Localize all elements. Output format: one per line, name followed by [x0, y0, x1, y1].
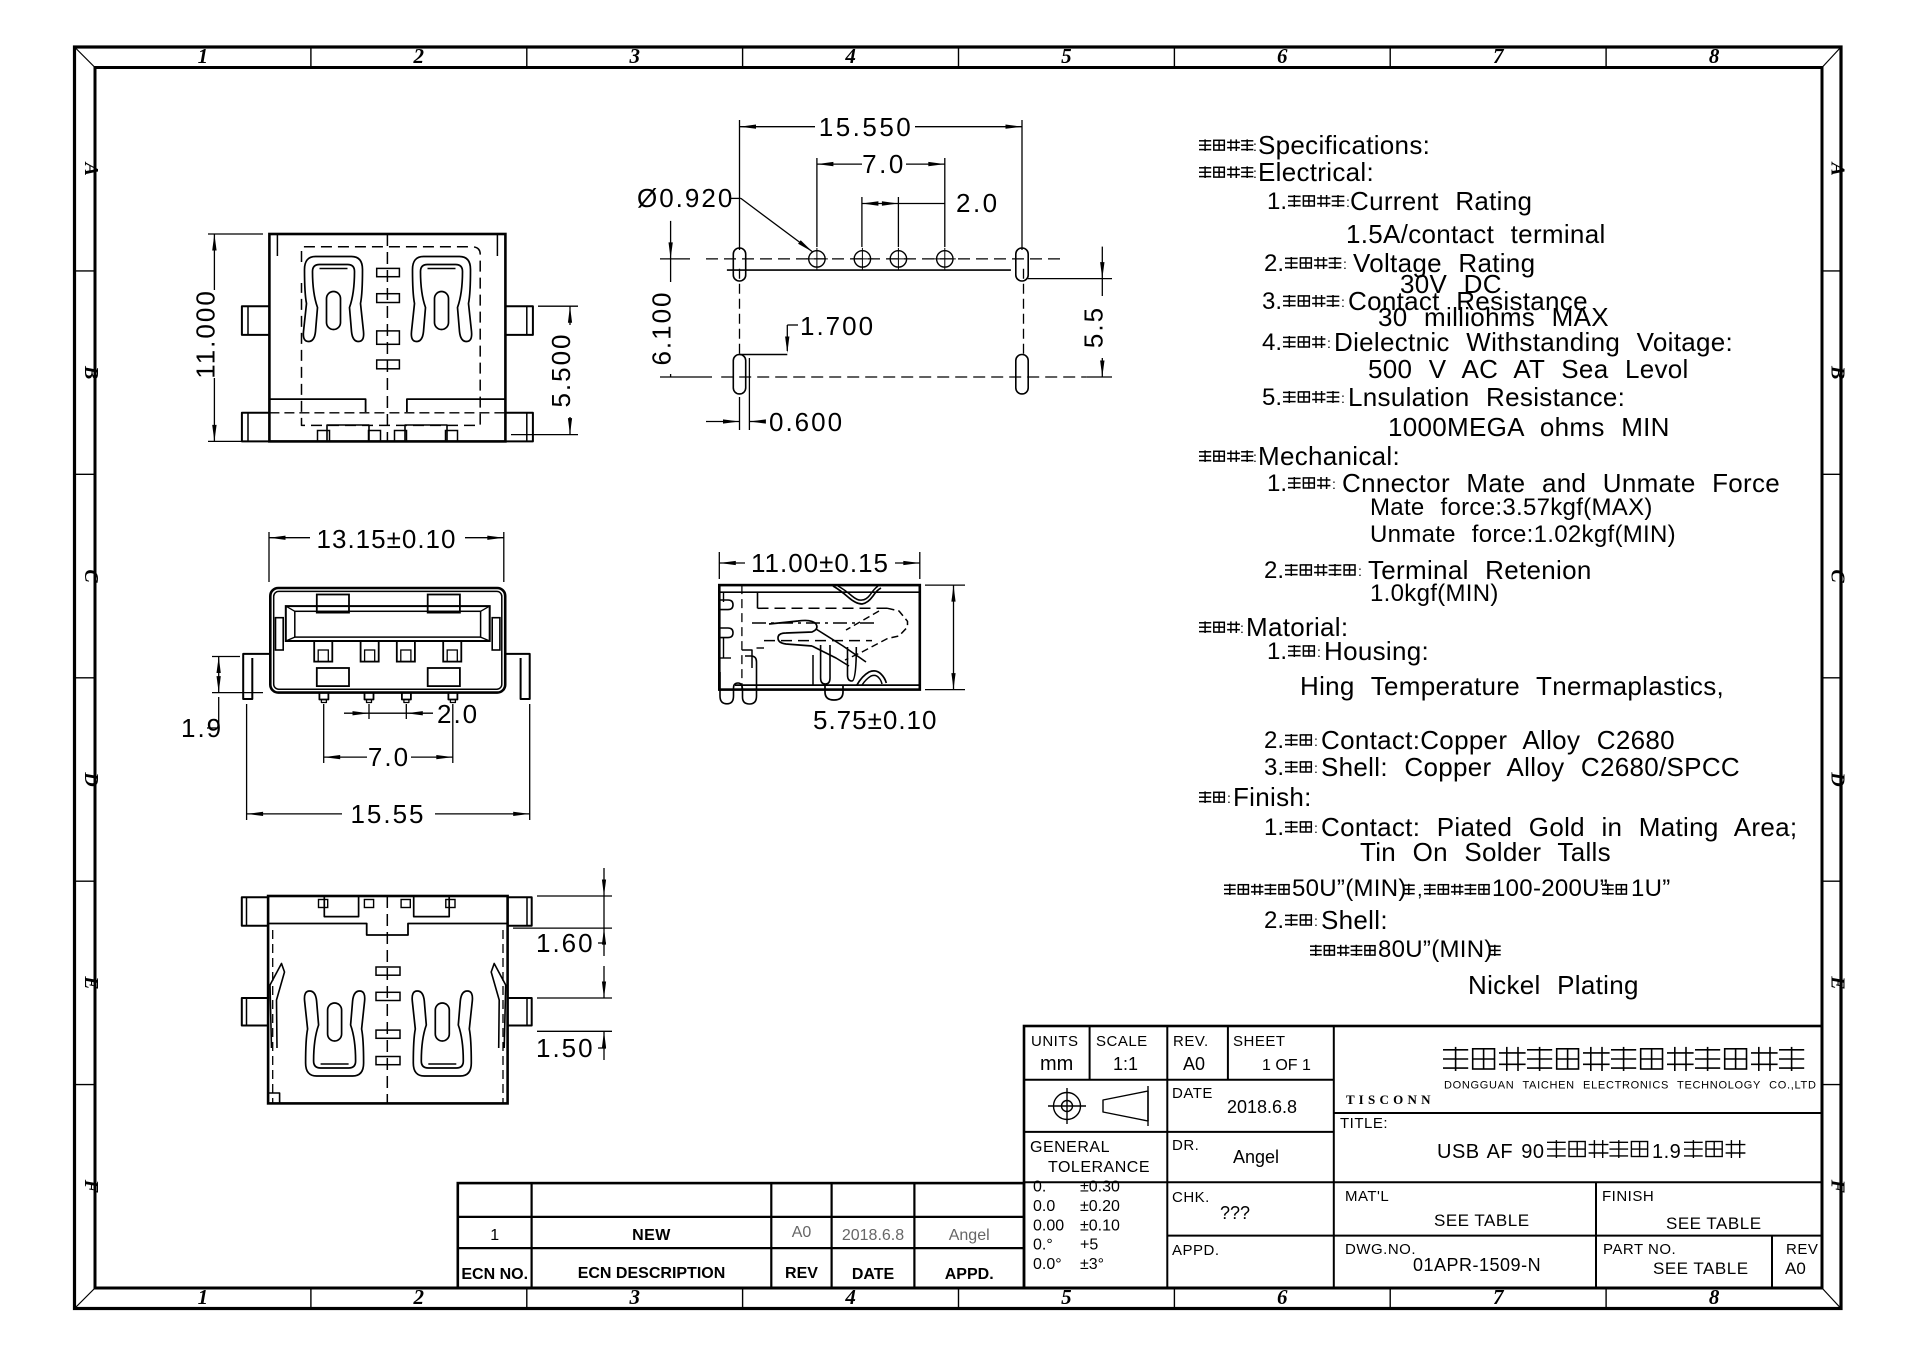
svg-text:15.55: 15.55	[350, 799, 425, 829]
svg-text::: :	[1332, 476, 1336, 492]
svg-text::: :	[1314, 820, 1318, 836]
svg-text:E: E	[1826, 975, 1848, 989]
svg-text::: :	[1341, 294, 1345, 310]
svg-text::: :	[1317, 644, 1321, 660]
svg-text:SCALE: SCALE	[1096, 1033, 1148, 1050]
svg-text:D: D	[80, 771, 102, 786]
svg-text:80U”(MIN): 80U”(MIN)	[1378, 936, 1493, 963]
svg-text:1U”: 1U”	[1631, 875, 1671, 902]
svg-text:DATE: DATE	[852, 1266, 895, 1283]
svg-text:±0.10: ±0.10	[1080, 1217, 1120, 1234]
svg-text:Angel: Angel	[1233, 1147, 1279, 1167]
svg-text:ECN DESCRIPTION: ECN DESCRIPTION	[578, 1265, 726, 1282]
svg-text:APPD.: APPD.	[1172, 1242, 1220, 1259]
svg-text:D: D	[1826, 771, 1848, 786]
svg-text:F: F	[80, 1179, 102, 1194]
svg-text:C: C	[80, 569, 102, 583]
svg-text:4.: 4.	[1262, 329, 1282, 356]
svg-text:DATE: DATE	[1172, 1085, 1213, 1102]
svg-text:A0: A0	[1785, 1259, 1806, 1278]
svg-text:CHK.: CHK.	[1172, 1189, 1210, 1206]
svg-text:6.100: 6.100	[647, 290, 677, 365]
svg-text:1: 1	[490, 1227, 499, 1244]
svg-text:A0: A0	[1183, 1054, 1205, 1074]
svg-text:1:1: 1:1	[1113, 1054, 1138, 1074]
svg-text:5.500: 5.500	[546, 332, 576, 407]
svg-text::: :	[1343, 256, 1347, 272]
svg-text::: :	[1227, 790, 1231, 806]
svg-text:REV.: REV.	[1173, 1033, 1209, 1050]
svg-text:500 V AC AT Sea Levol: 500 V AC AT Sea Levol	[1368, 354, 1689, 384]
svg-text:Ø0.920: Ø0.920	[637, 183, 734, 213]
svg-text::: :	[1358, 563, 1362, 579]
svg-text:F: F	[1826, 1179, 1848, 1194]
svg-text:7.0: 7.0	[368, 742, 410, 772]
svg-text:±3°: ±3°	[1080, 1256, 1104, 1273]
svg-text:2018.6.8: 2018.6.8	[1227, 1097, 1297, 1117]
svg-text:MAT'L: MAT'L	[1345, 1188, 1389, 1205]
svg-text:E: E	[80, 975, 102, 989]
svg-text:6: 6	[1277, 44, 1288, 68]
svg-text:Mate force:3.57kgf(MAX): Mate force:3.57kgf(MAX)	[1370, 494, 1653, 521]
svg-text:UNITS: UNITS	[1031, 1033, 1079, 1050]
svg-text::: :	[1341, 390, 1345, 406]
svg-text:Unmate force:1.02kgf(MIN): Unmate force:1.02kgf(MIN)	[1370, 521, 1676, 548]
svg-text:Hing Temperature Tnermapla: Hing Temperature Tnermaplastics,	[1300, 671, 1724, 701]
svg-text:Contact:Copper Alloy C2680: Contact:Copper Alloy C2680	[1321, 725, 1675, 755]
svg-text:1.: 1.	[1267, 470, 1287, 497]
svg-text:GENERAL: GENERAL	[1030, 1139, 1110, 1156]
svg-text:13.15±0.10: 13.15±0.10	[317, 524, 457, 554]
svg-text:0.: 0.	[1033, 1179, 1046, 1196]
svg-text:Mechanical:: Mechanical:	[1258, 441, 1400, 471]
svg-text::: :	[1253, 165, 1257, 181]
svg-text:B: B	[80, 365, 102, 379]
svg-text:3: 3	[628, 44, 640, 68]
svg-text:Lnsulation Resistance:: Lnsulation Resistance:	[1348, 382, 1625, 412]
svg-text:0.00: 0.00	[1033, 1217, 1064, 1234]
svg-text:2.0: 2.0	[437, 699, 479, 729]
svg-text:50U”(MIN): 50U”(MIN)	[1292, 875, 1407, 902]
svg-text:1 OF 1: 1 OF 1	[1262, 1057, 1311, 1074]
svg-text:8: 8	[1709, 44, 1720, 68]
svg-text::: :	[1327, 335, 1331, 351]
svg-text:,: ,	[1417, 879, 1423, 901]
svg-text:DONGGUAN TAICHEN ELECTRONICS T: DONGGUAN TAICHEN ELECTRONICS TECHNOLOGY …	[1444, 1080, 1817, 1092]
svg-text:2.: 2.	[1264, 557, 1284, 584]
svg-text:0.°: 0.°	[1033, 1237, 1053, 1254]
svg-text:1.700: 1.700	[800, 311, 875, 341]
svg-text:5.: 5.	[1262, 384, 1282, 411]
svg-text::: :	[1314, 760, 1318, 776]
svg-text:REV: REV	[785, 1265, 818, 1282]
svg-text:5: 5	[1061, 44, 1072, 68]
svg-text:2.: 2.	[1264, 907, 1284, 934]
svg-text:7.0: 7.0	[862, 149, 906, 179]
svg-text:15.550: 15.550	[819, 112, 914, 142]
svg-text:3.: 3.	[1264, 754, 1284, 781]
svg-text:01APR-1509-N: 01APR-1509-N	[1413, 1255, 1541, 1275]
svg-text:0.600: 0.600	[769, 407, 844, 437]
svg-text:Shell: Copper Alloy C2680/S: Shell: Copper Alloy C2680/SPCC	[1321, 752, 1740, 782]
svg-text:1.60: 1.60	[536, 928, 595, 958]
svg-text:1000MEGA ohms MIN: 1000MEGA ohms MIN	[1388, 412, 1670, 442]
svg-text:DWG.NO.: DWG.NO.	[1345, 1241, 1416, 1258]
svg-text:REV: REV	[1786, 1241, 1818, 1258]
svg-text:Current Rating: Current Rating	[1350, 186, 1532, 216]
svg-text:T I S C O N N: T I S C O N N	[1346, 1092, 1431, 1107]
svg-text:Tin On Solder Talls: Tin On Solder Talls	[1360, 837, 1611, 867]
svg-text:+5: +5	[1080, 1237, 1098, 1254]
svg-text:1.50: 1.50	[536, 1033, 595, 1063]
svg-text:±0.30: ±0.30	[1080, 1179, 1120, 1196]
svg-text:Dielectnic Withstanding Voit: Dielectnic Withstanding Voitage:	[1334, 327, 1733, 357]
svg-text:B: B	[1827, 365, 1849, 379]
svg-text:2: 2	[413, 1285, 425, 1309]
svg-text::: :	[1253, 138, 1257, 154]
svg-text:A: A	[80, 161, 102, 176]
svg-text:1.: 1.	[1267, 188, 1287, 215]
svg-text:FINISH: FINISH	[1602, 1188, 1654, 1205]
svg-text::: :	[1240, 620, 1244, 636]
svg-text:1.: 1.	[1264, 814, 1284, 841]
svg-text:11.000: 11.000	[190, 289, 220, 379]
svg-text:Finish:: Finish:	[1233, 782, 1312, 812]
svg-text:TITLE:: TITLE:	[1340, 1115, 1388, 1132]
svg-text:3.: 3.	[1262, 288, 1282, 315]
svg-text:NEW: NEW	[632, 1227, 671, 1244]
svg-text:1.: 1.	[1267, 638, 1287, 665]
svg-text:Nickel Plating: Nickel Plating	[1468, 970, 1639, 1000]
svg-text:Housing:: Housing:	[1324, 636, 1429, 666]
svg-text:Angel: Angel	[949, 1227, 990, 1244]
svg-text:2018.6.8: 2018.6.8	[842, 1227, 904, 1244]
svg-text:1: 1	[198, 1285, 209, 1309]
svg-text:Shell:: Shell:	[1321, 905, 1388, 935]
svg-text:TOLERANCE: TOLERANCE	[1048, 1159, 1150, 1176]
svg-text:SEE TABLE: SEE TABLE	[1434, 1211, 1530, 1230]
svg-text:5.5: 5.5	[1078, 306, 1108, 348]
svg-text:5.75±0.10: 5.75±0.10	[813, 705, 937, 735]
svg-text:Specifications:: Specifications:	[1258, 130, 1430, 160]
svg-text:1.0kgf(MIN): 1.0kgf(MIN)	[1370, 580, 1499, 607]
svg-text:A: A	[1827, 161, 1849, 176]
svg-text:2.: 2.	[1264, 727, 1284, 754]
svg-text:2.: 2.	[1264, 250, 1284, 277]
svg-text:DR.: DR.	[1172, 1137, 1199, 1154]
svg-text:PART NO.: PART NO.	[1603, 1241, 1676, 1258]
svg-text:4: 4	[844, 44, 856, 68]
svg-text:APPD.: APPD.	[945, 1266, 994, 1283]
svg-text:A0: A0	[792, 1224, 812, 1241]
svg-text:7: 7	[1493, 44, 1505, 68]
svg-text:SHEET: SHEET	[1233, 1033, 1286, 1050]
svg-text:1: 1	[198, 44, 209, 68]
svg-text:2: 2	[413, 44, 425, 68]
svg-text:C: C	[1827, 569, 1849, 583]
svg-text:ECN NO.: ECN NO.	[461, 1266, 528, 1283]
svg-text:2.0: 2.0	[956, 188, 1000, 218]
svg-text:100-200U”: 100-200U”	[1492, 875, 1608, 902]
svg-text:???: ???	[1220, 1203, 1250, 1223]
svg-text:0.0°: 0.0°	[1033, 1256, 1062, 1273]
svg-text:USB AF 90: USB AF 90	[1437, 1141, 1544, 1163]
svg-text:1.5A/contact terminal: 1.5A/contact terminal	[1346, 219, 1606, 249]
svg-text:0.0: 0.0	[1033, 1198, 1055, 1215]
svg-text::: :	[1314, 733, 1318, 749]
svg-text:11.00±0.15: 11.00±0.15	[751, 548, 889, 578]
svg-text:Electrical:: Electrical:	[1258, 157, 1374, 187]
svg-text:mm: mm	[1040, 1053, 1073, 1075]
svg-text::: :	[1253, 449, 1257, 465]
svg-text:±0.20: ±0.20	[1080, 1198, 1120, 1215]
svg-text::: :	[1314, 913, 1318, 929]
svg-text:SEE TABLE: SEE TABLE	[1666, 1214, 1762, 1233]
svg-text:1.9: 1.9	[1652, 1141, 1681, 1163]
svg-text:SEE TABLE: SEE TABLE	[1653, 1259, 1749, 1278]
